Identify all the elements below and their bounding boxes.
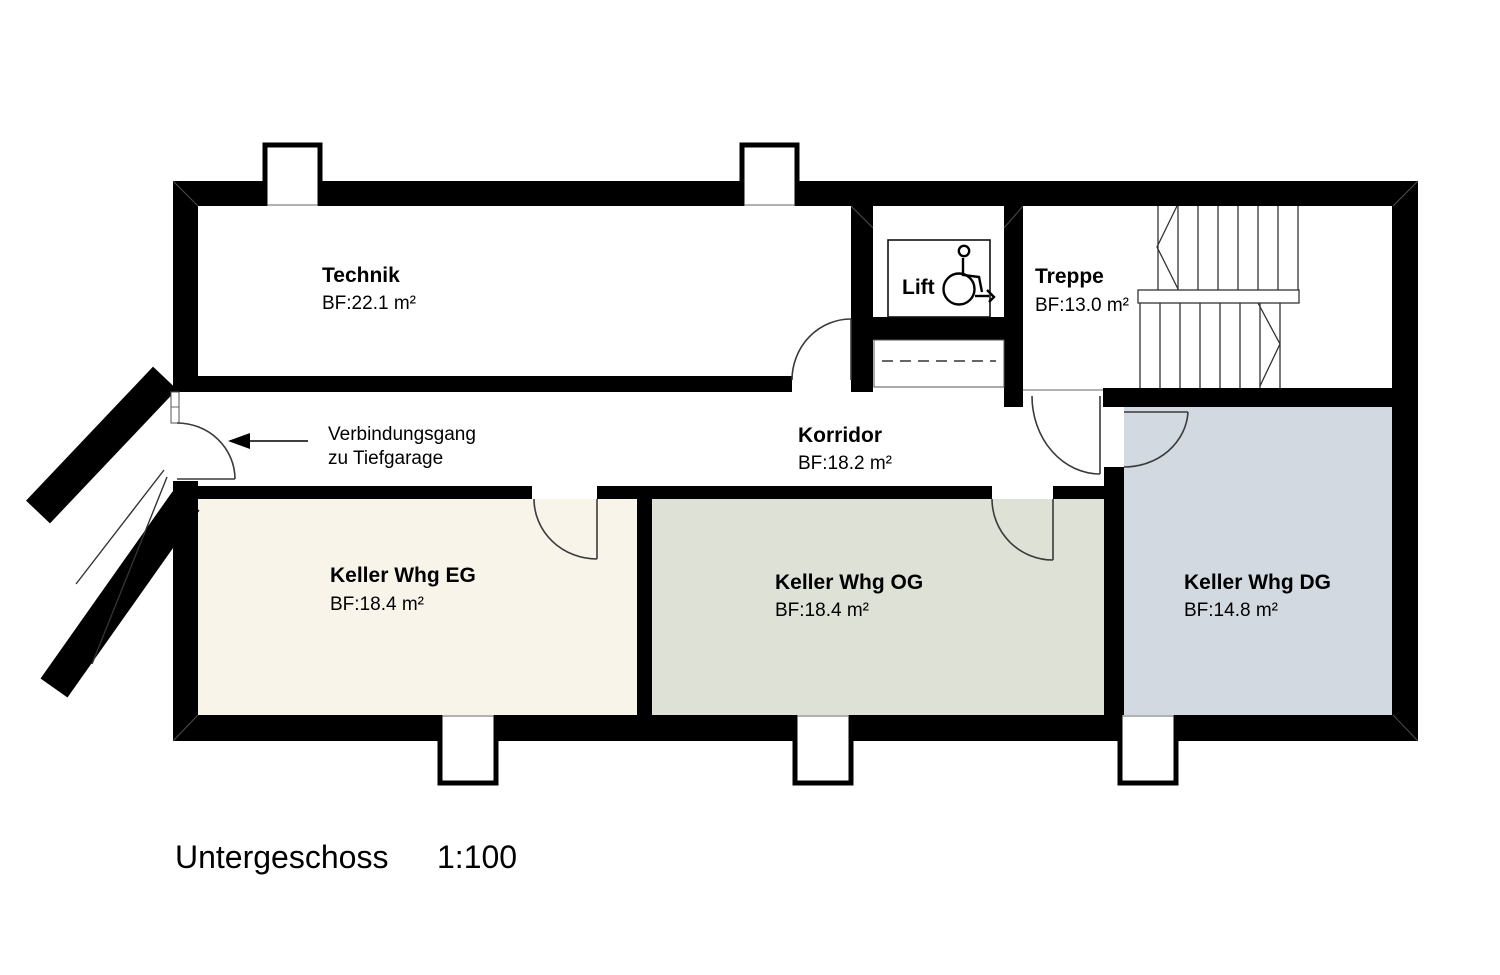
label-garage-line2: zu Tiefgarage	[328, 448, 443, 469]
label-keller-eg: Keller Whg EG	[330, 564, 476, 587]
ramp-wall-upper	[38, 378, 165, 512]
floor-plan-page: Technik BF:22.1 m² Lift Treppe BF:13.0 m…	[0, 0, 1500, 975]
stairs	[1138, 206, 1299, 388]
label-treppe: Treppe	[1035, 265, 1104, 288]
garage-direction-arrow	[228, 433, 308, 449]
label-keller-og: Keller Whg OG	[775, 571, 923, 594]
label-korridor: Korridor	[798, 424, 882, 447]
keller-og-floor	[652, 499, 1104, 715]
wall-lift-west	[851, 206, 873, 392]
area-technik: BF:22.1 m²	[322, 293, 416, 314]
keller-dg-floor	[1124, 407, 1392, 715]
label-technik: Technik	[322, 264, 400, 287]
stair-break-line-upper	[1157, 206, 1178, 289]
wall-treppe-south	[1103, 388, 1392, 407]
label-lift: Lift	[902, 276, 935, 299]
wall-right	[1392, 181, 1418, 741]
wall-lift-east	[1004, 206, 1023, 407]
lift-assembly	[874, 240, 1004, 387]
area-treppe: BF:13.0 m²	[1035, 295, 1129, 316]
door-garage-swing-arc	[177, 423, 235, 479]
stair-treads-lower	[1140, 303, 1280, 388]
wall-og-dg	[1104, 467, 1124, 715]
drawing-title: Untergeschoss 1:100	[175, 839, 517, 875]
light-shaft-bottom-2	[795, 715, 851, 783]
wall-technik-south	[198, 376, 792, 392]
door-treppe-swing-arc	[1032, 396, 1100, 474]
area-keller-og: BF:18.4 m²	[775, 600, 869, 621]
wall-korridor-south-2	[597, 486, 992, 499]
title-floor-name: Untergeschoss	[175, 839, 388, 875]
area-keller-dg: BF:14.8 m²	[1184, 600, 1278, 621]
wall-lift-south	[851, 317, 1005, 340]
door-garage-entrance	[171, 392, 235, 479]
lift-door-recess	[874, 340, 1004, 387]
area-keller-eg: BF:18.4 m²	[330, 594, 424, 615]
stair-treads-upper	[1158, 206, 1298, 290]
door-technik	[792, 319, 851, 380]
light-shaft-bottom-1	[440, 715, 496, 783]
wall-eg-og	[637, 499, 652, 715]
wall-korridor-south-1	[197, 486, 532, 499]
title-scale: 1:100	[437, 839, 517, 875]
stair-landing	[1138, 290, 1299, 303]
light-shaft-top-1	[265, 145, 320, 206]
wall-korridor-south-3	[1053, 486, 1104, 499]
door-treppe	[1023, 390, 1103, 474]
label-keller-dg: Keller Whg DG	[1184, 571, 1331, 594]
stair-break-line-lower	[1258, 303, 1280, 386]
arrow-head	[228, 433, 250, 449]
garage-ramp	[38, 378, 186, 688]
label-garage-line1: Verbindungsgang	[328, 424, 476, 445]
floor-plan-drawing: Technik BF:22.1 m² Lift Treppe BF:13.0 m…	[0, 0, 1500, 975]
light-shaft-top-2	[742, 145, 797, 206]
area-korridor: BF:18.2 m²	[798, 453, 892, 474]
door-technik-swing-arc	[792, 319, 851, 380]
light-shaft-bottom-3	[1120, 715, 1176, 783]
wall-left-upper	[173, 181, 198, 392]
